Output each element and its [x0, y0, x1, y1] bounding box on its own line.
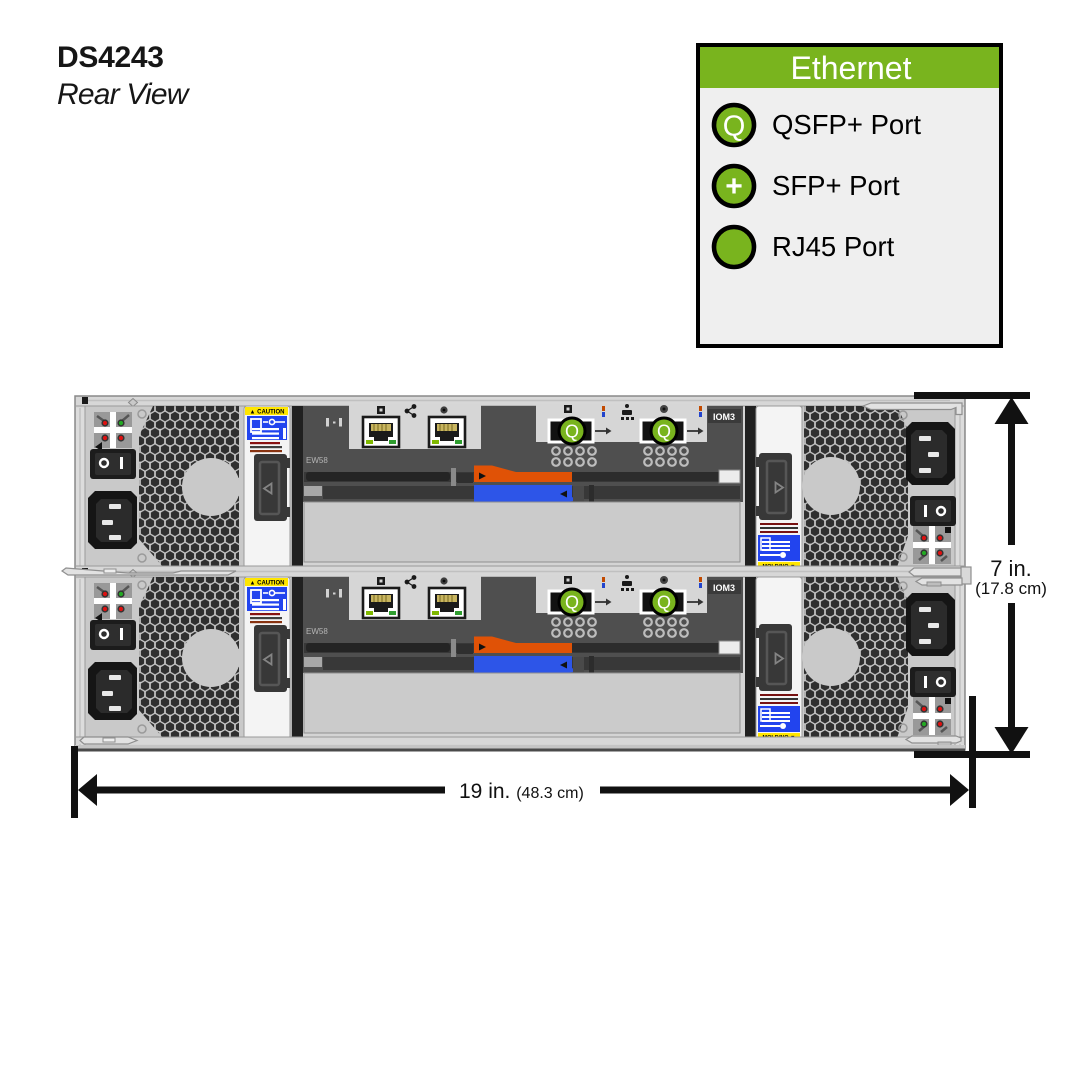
- svg-text:IOM3: IOM3: [713, 412, 735, 422]
- svg-text:DS4243: DS4243: [57, 41, 164, 74]
- svg-text:EW58: EW58: [306, 456, 328, 465]
- svg-text:Q: Q: [565, 422, 579, 442]
- svg-text:QSFP+ Port: QSFP+ Port: [772, 109, 921, 140]
- svg-text:Q: Q: [723, 111, 746, 143]
- svg-text:7 in.: 7 in.: [990, 556, 1032, 581]
- svg-text:▲ CAUTION: ▲ CAUTION: [250, 410, 285, 416]
- svg-text:Ethernet: Ethernet: [791, 50, 912, 86]
- svg-text:(17.8 cm): (17.8 cm): [975, 579, 1047, 598]
- svg-text:RJ45 Port: RJ45 Port: [772, 231, 895, 262]
- svg-text:+: +: [725, 170, 743, 203]
- svg-text:Rear View: Rear View: [57, 78, 191, 111]
- svg-text:SFP+ Port: SFP+ Port: [772, 170, 900, 201]
- svg-text:Q: Q: [657, 422, 671, 442]
